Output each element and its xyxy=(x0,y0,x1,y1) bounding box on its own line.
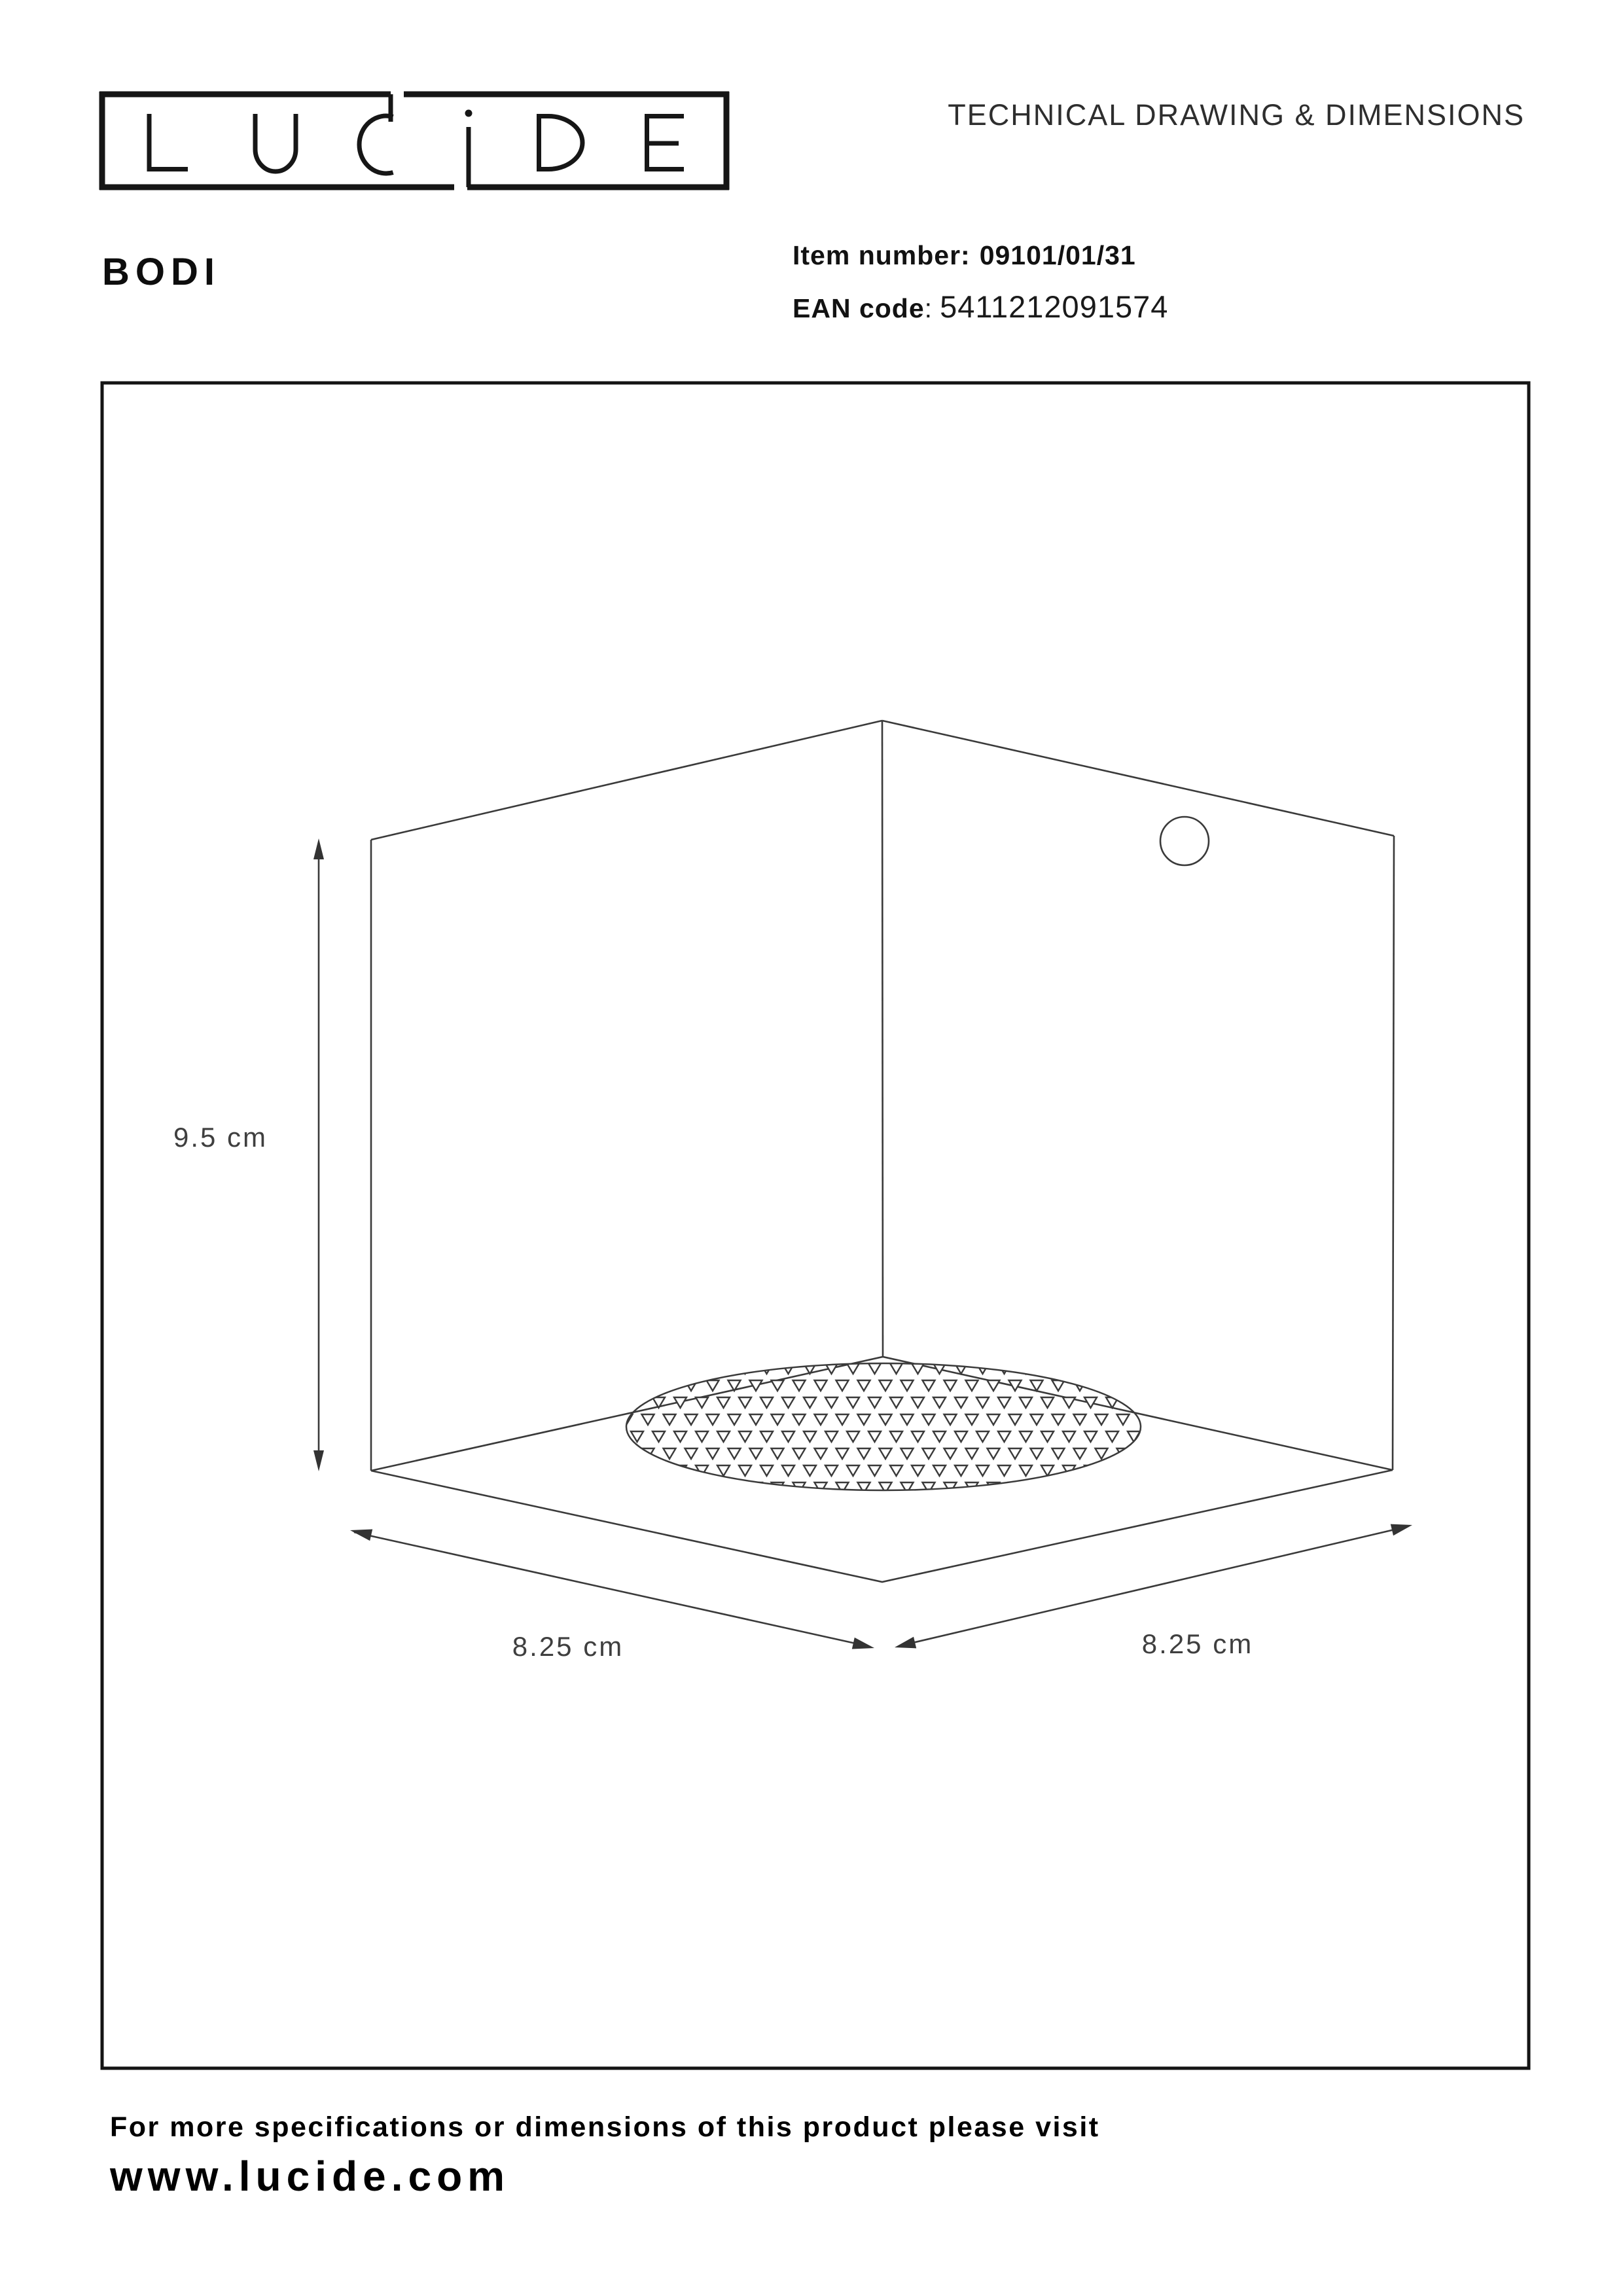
height-dimension-label: 9.5 cm xyxy=(173,1122,268,1153)
technical-drawing-canvas: 9.5 cm 8.25 cm 8.25 cm xyxy=(0,0,1623,2296)
dimension-width-right: 8.25 cm xyxy=(895,1524,1412,1659)
dimension-height: 9.5 cm xyxy=(173,838,324,1471)
footer-website-link[interactable]: www.lucide.com xyxy=(110,2152,510,2200)
dimension-width-left: 8.25 cm xyxy=(350,1530,874,1662)
footer-note: For more specifications or dimensions of… xyxy=(110,2111,1100,2144)
width-left-dimension-label: 8.25 cm xyxy=(512,1631,624,1662)
mounting-hole-circle xyxy=(1160,817,1209,865)
spec-sheet-page: { "header": { "logo_text": "LUCIDE", "do… xyxy=(0,0,1623,2296)
drawing-frame xyxy=(102,383,1529,2068)
width-right-dimension-label: 8.25 cm xyxy=(1142,1628,1253,1659)
light-aperture-ellipse xyxy=(626,1363,1141,1490)
